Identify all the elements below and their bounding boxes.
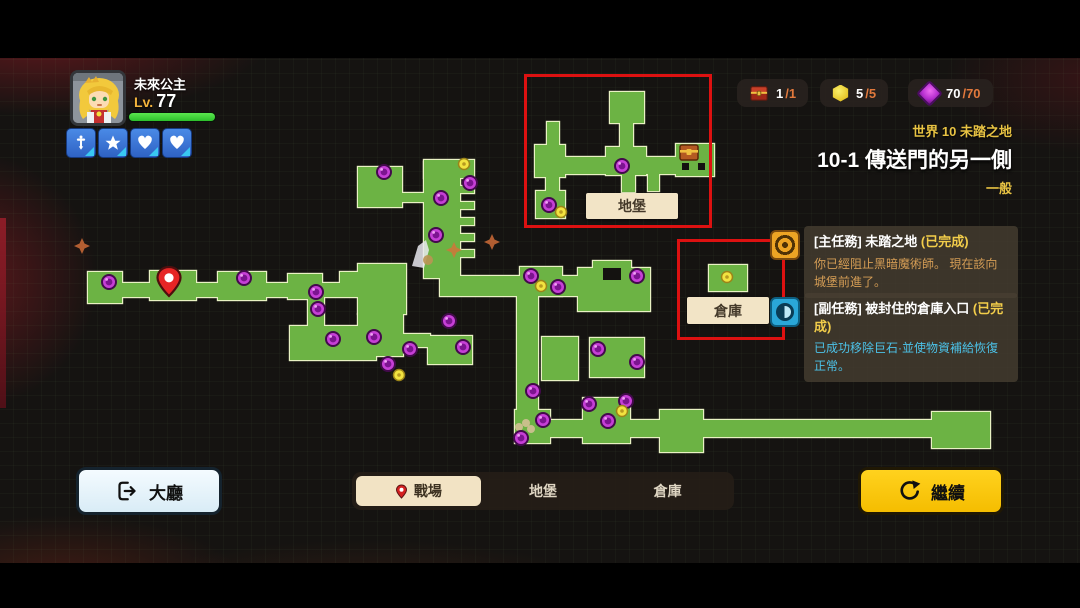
portal-orb-shine — [437, 194, 440, 197]
resource-purple-gem[interactable]: 70/70 — [908, 79, 993, 107]
purple-gem-icon — [916, 80, 943, 107]
main-quest-target-icon — [770, 230, 800, 260]
warehouse-highlight-rect — [677, 239, 785, 340]
coin-dot-core — [620, 409, 624, 413]
portal-orb-shine — [527, 272, 530, 275]
side-quest-panel: [副任務] 被封住的倉庫入口 (已完成) 已成功移除巨石·並使物資補給恢復正常。 — [804, 293, 1018, 382]
portal-orb-shine — [370, 333, 373, 336]
bunker-label: 地堡 — [586, 193, 678, 219]
map-room — [398, 193, 426, 202]
chest-icon — [749, 84, 769, 102]
map-tab-bar: 戰場 地堡 倉庫 — [352, 472, 734, 510]
map-room — [542, 337, 578, 380]
portal-orb-shine — [312, 288, 315, 291]
resource-hex-gem[interactable]: 5/5 — [820, 79, 888, 107]
main-quest-title: [主任務] 未踏之地 (已完成) — [814, 233, 1008, 251]
hex-gem-icon — [832, 85, 849, 102]
coin-dot-core — [539, 284, 543, 288]
difficulty-label: 一般 — [986, 178, 1012, 197]
map-room — [458, 250, 474, 257]
world-label: 世界 10 未踏之地 — [912, 121, 1012, 140]
game-screen: 地堡 倉庫 未來公主 Lv.77 — [0, 0, 1080, 608]
portal-orb-shine — [240, 274, 243, 277]
portal-orb-shine — [633, 358, 636, 361]
main-quest-desc: 你已經阻止黑暗魔術師。 現在該向城堡前進了。 — [814, 255, 1008, 291]
portal-orb-shine — [539, 416, 542, 419]
portal-orb-shine — [466, 179, 469, 182]
map-room — [358, 264, 406, 314]
portal-orb-shine — [380, 168, 383, 171]
princess-portrait — [73, 73, 123, 123]
portal-orb-shine — [517, 434, 520, 437]
buff-sword-button[interactable] — [66, 128, 96, 158]
debris-sprite — [515, 423, 523, 431]
coin-dot-core — [462, 162, 466, 166]
portal-orb-shine — [105, 278, 108, 281]
map-room — [932, 412, 990, 448]
portal-orb-shine — [445, 317, 448, 320]
map-room — [703, 420, 933, 437]
sparkle-effect — [74, 238, 90, 254]
buff-heart-button[interactable] — [130, 128, 160, 158]
buff-heart2-button[interactable] — [162, 128, 192, 158]
portal-orb-shine — [384, 360, 387, 363]
star-icon — [104, 134, 122, 152]
pin-icon — [395, 484, 408, 499]
debris-sprite — [527, 425, 535, 433]
portal-orb-shine — [633, 272, 636, 275]
continue-button[interactable]: 繼續 — [858, 467, 1004, 515]
side-quest-title: [副任務] 被封住的倉庫入口 (已完成) — [814, 300, 1008, 335]
map-room — [458, 218, 474, 225]
hp-bar — [128, 112, 216, 122]
map-room — [458, 202, 474, 209]
main-quest-panel: [主任務] 未踏之地 (已完成) 你已經阻止黑暗魔術師。 現在該向城堡前進了。 — [804, 226, 1018, 298]
portal-orb-shine — [529, 387, 532, 390]
map-room — [550, 420, 583, 437]
warehouse-label: 倉庫 — [687, 297, 769, 324]
heart-icon — [168, 134, 186, 152]
portal-orb-shine — [622, 397, 625, 400]
tab-warehouse[interactable]: 倉庫 — [605, 476, 730, 506]
portal-orb-shine — [459, 343, 462, 346]
map-notch — [603, 268, 621, 280]
map-room — [630, 420, 660, 437]
map-room — [660, 410, 703, 452]
refresh-icon — [897, 479, 921, 503]
sword-icon — [72, 134, 90, 152]
lobby-button[interactable]: 大廳 — [76, 467, 222, 515]
top-letterbox — [0, 0, 1080, 58]
avatar[interactable] — [70, 70, 126, 126]
buff-star-button[interactable] — [98, 128, 128, 158]
tab-bunker[interactable]: 地堡 — [481, 476, 606, 506]
quest-status: (已完成) — [921, 234, 969, 249]
stage-title: 10-1 傳送門的另一側 — [817, 144, 1012, 174]
tab-battlefield[interactable]: 戰場 — [356, 476, 481, 506]
heart-icon — [136, 134, 154, 152]
resource-chest[interactable]: 1/1 — [737, 79, 808, 107]
exit-door-icon — [115, 479, 139, 503]
portal-orb-shine — [604, 417, 607, 420]
coin-dot-core — [397, 373, 401, 377]
sparkle-effect — [484, 234, 500, 250]
hp-fill — [129, 113, 215, 121]
portal-orb-shine — [329, 335, 332, 338]
side-quest-desc: 已成功移除巨石·並使物資補給恢復正常。 — [814, 339, 1008, 375]
portal-orb-shine — [585, 400, 588, 403]
map-room — [458, 234, 474, 241]
side-quest-circle-icon — [770, 297, 800, 327]
bottom-letterbox — [0, 563, 1080, 608]
angel-statue-base — [423, 255, 433, 265]
portal-orb-shine — [554, 283, 557, 286]
portal-orb-shine — [432, 231, 435, 234]
portal-orb-shine — [594, 345, 597, 348]
portal-orb-shine — [314, 305, 317, 308]
player-level: Lv.77 — [134, 91, 176, 112]
portal-orb-shine — [406, 345, 409, 348]
